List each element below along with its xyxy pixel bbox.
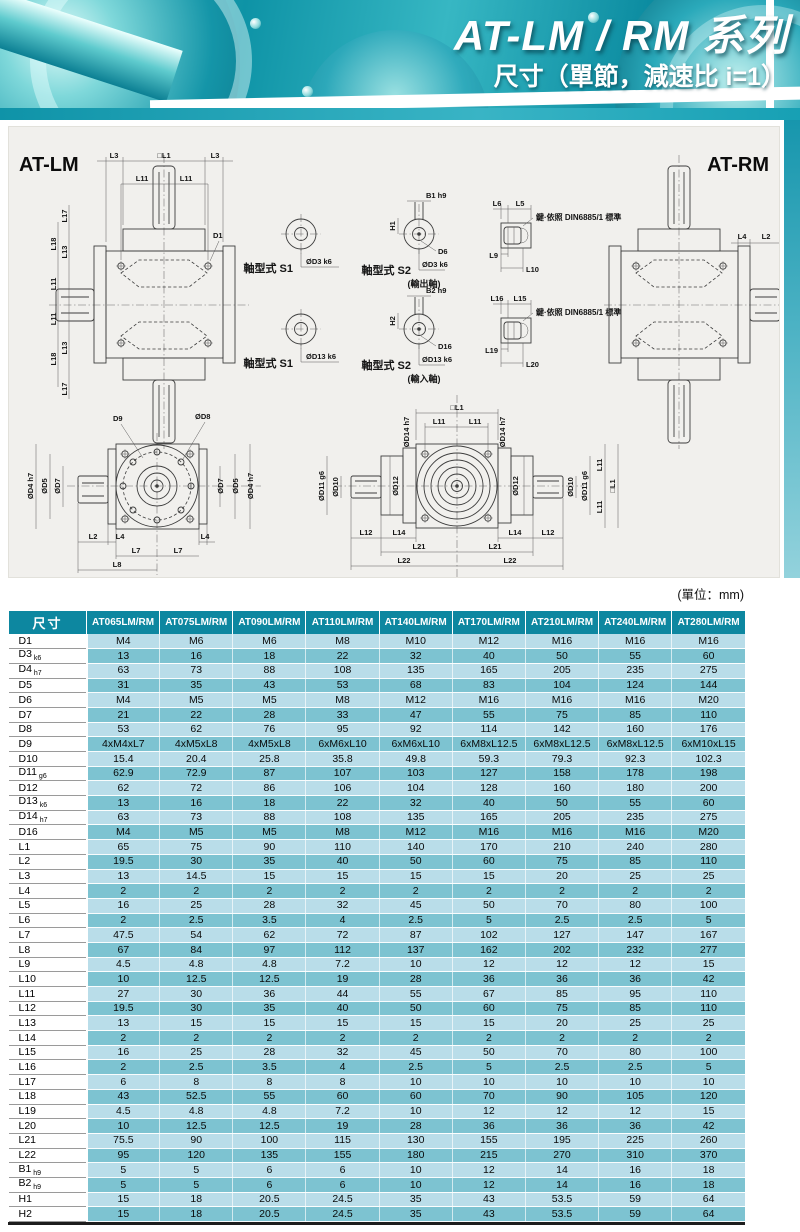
dim-label: L4 bbox=[738, 232, 748, 241]
value-cell: 16 bbox=[160, 649, 233, 664]
value-cell: 4xM4xL7 bbox=[87, 737, 160, 752]
value-cell: 36 bbox=[233, 987, 306, 1002]
row-label: D9 bbox=[9, 737, 87, 752]
value-cell: 62 bbox=[233, 928, 306, 943]
value-cell: 4xM5xL8 bbox=[160, 737, 233, 752]
value-cell: M12 bbox=[379, 693, 452, 708]
row-label: D16 bbox=[9, 825, 87, 840]
value-cell: 12.5 bbox=[160, 1119, 233, 1134]
value-cell: 14.5 bbox=[160, 869, 233, 884]
value-cell: 6 bbox=[87, 1075, 160, 1090]
value-cell: 127 bbox=[452, 766, 525, 781]
value-cell: M16 bbox=[525, 693, 598, 708]
dim-label: L17 bbox=[60, 210, 69, 223]
dim-label: H2 bbox=[388, 316, 397, 326]
value-cell: 16 bbox=[599, 1163, 672, 1178]
value-cell: 90 bbox=[525, 1089, 598, 1104]
right-edge-stripe bbox=[784, 120, 800, 578]
shaft-type-s1-label: 軸型式 S1 bbox=[243, 356, 293, 370]
value-cell: 10 bbox=[452, 1075, 525, 1090]
table-row: L31314.515151515202525 bbox=[9, 869, 746, 884]
value-cell: 15 bbox=[452, 869, 525, 884]
value-cell: 2 bbox=[160, 1031, 233, 1046]
value-cell: 92.3 bbox=[599, 752, 672, 767]
value-cell: 2 bbox=[599, 884, 672, 899]
value-cell: 225 bbox=[599, 1133, 672, 1148]
value-cell: 12.5 bbox=[233, 1119, 306, 1134]
value-cell: 158 bbox=[525, 766, 598, 781]
value-cell: 135 bbox=[379, 810, 452, 825]
dim-label: L11 bbox=[180, 174, 193, 183]
value-cell: 53.5 bbox=[525, 1207, 598, 1222]
value-cell: 18 bbox=[672, 1177, 745, 1192]
housing-side-view: □L1 L11 L11 ØD14 h7 ØD14 h7 ØD11 g6 ØD10… bbox=[317, 395, 618, 577]
value-cell: 100 bbox=[672, 898, 745, 913]
dim-label: D16 bbox=[438, 342, 452, 351]
value-cell: 102 bbox=[452, 928, 525, 943]
table-row: D3 k6131618223240505560 bbox=[9, 649, 746, 664]
row-label-tolerance: h9 bbox=[31, 1184, 41, 1191]
value-cell: 100 bbox=[233, 1133, 306, 1148]
value-cell: M8 bbox=[306, 634, 379, 649]
value-cell: 72 bbox=[160, 781, 233, 796]
dim-label: L14 bbox=[393, 528, 407, 537]
value-cell: 43 bbox=[87, 1089, 160, 1104]
value-cell: 18 bbox=[160, 1192, 233, 1207]
value-cell: 64 bbox=[672, 1207, 745, 1222]
table-body: D1M4M6M6M8M10M12M16M16M16D3 k61316182232… bbox=[9, 634, 746, 1222]
page-subtitle: 尺寸（單節，減速比 i=1） bbox=[494, 57, 786, 93]
value-cell: 52.5 bbox=[160, 1089, 233, 1104]
value-cell: 4.5 bbox=[87, 957, 160, 972]
value-cell: 49.8 bbox=[379, 752, 452, 767]
value-cell: 6 bbox=[233, 1163, 306, 1178]
value-cell: 10 bbox=[379, 1075, 452, 1090]
value-cell: 12 bbox=[599, 957, 672, 972]
value-cell: 12 bbox=[525, 1104, 598, 1119]
dim-label: L13 bbox=[60, 246, 69, 259]
value-cell: 87 bbox=[379, 928, 452, 943]
flange-side-view: D9 ØD8 ØD4 h7 ØD5 ØD7 ØD7 ØD5 ØD4 h7 L2 … bbox=[26, 412, 261, 575]
value-cell: 35 bbox=[233, 854, 306, 869]
dim-label: L11 bbox=[595, 459, 604, 472]
value-cell: 90 bbox=[233, 840, 306, 855]
value-cell: 167 bbox=[672, 928, 745, 943]
table-row: D14 h7637388108135165205235275 bbox=[9, 810, 746, 825]
value-cell: 7.2 bbox=[306, 1104, 379, 1119]
value-cell: 90 bbox=[160, 1133, 233, 1148]
value-cell: 6xM10xL15 bbox=[672, 737, 745, 752]
value-cell: 7.2 bbox=[306, 957, 379, 972]
value-cell: 275 bbox=[672, 810, 745, 825]
dim-label: L17 bbox=[60, 383, 69, 396]
value-cell: 144 bbox=[672, 678, 745, 693]
dim-label: D9 bbox=[113, 414, 123, 423]
value-cell: 2.5 bbox=[379, 1060, 452, 1075]
value-cell: 2.5 bbox=[160, 1060, 233, 1075]
column-header: AT140LM/RM bbox=[379, 611, 452, 634]
table-row: L8678497112137162202232277 bbox=[9, 942, 746, 957]
value-cell: 80 bbox=[599, 1045, 672, 1060]
value-cell: M16 bbox=[599, 634, 672, 649]
value-cell: 2 bbox=[525, 1031, 598, 1046]
value-cell: 12 bbox=[452, 1177, 525, 1192]
value-cell: 28 bbox=[379, 972, 452, 987]
dim-label: ØD10 bbox=[331, 477, 340, 497]
value-cell: 19.5 bbox=[87, 1001, 160, 1016]
value-cell: M6 bbox=[160, 634, 233, 649]
row-label: L6 bbox=[9, 913, 87, 928]
value-cell: 155 bbox=[452, 1133, 525, 1148]
value-cell: 2 bbox=[233, 884, 306, 899]
value-cell: 35 bbox=[379, 1207, 452, 1222]
value-cell: 180 bbox=[379, 1148, 452, 1163]
value-cell: 10 bbox=[379, 1104, 452, 1119]
value-cell: 5 bbox=[160, 1163, 233, 1178]
value-cell: 86 bbox=[233, 781, 306, 796]
value-cell: 15 bbox=[87, 1192, 160, 1207]
dim-label: L8 bbox=[113, 560, 122, 569]
value-cell: 2.5 bbox=[160, 913, 233, 928]
value-cell: 202 bbox=[525, 942, 598, 957]
value-cell: 10 bbox=[379, 1163, 452, 1178]
value-cell: 2 bbox=[672, 884, 745, 899]
dim-label: L18 bbox=[49, 353, 58, 366]
value-cell: 108 bbox=[306, 663, 379, 678]
dim-label: L15 bbox=[514, 294, 527, 303]
value-cell: 135 bbox=[379, 663, 452, 678]
shaft-type-s2-label: 軸型式 S2 bbox=[361, 358, 411, 372]
value-cell: 115 bbox=[306, 1133, 379, 1148]
value-cell: 30 bbox=[160, 987, 233, 1002]
dim-label: L7 bbox=[174, 546, 183, 555]
bolt-dot bbox=[302, 86, 313, 97]
value-cell: 15 bbox=[672, 957, 745, 972]
dim-label: L12 bbox=[360, 528, 373, 537]
value-cell: 10 bbox=[87, 1119, 160, 1134]
value-cell: 25.8 bbox=[233, 752, 306, 767]
dim-label: ØD7 bbox=[53, 478, 62, 493]
dim-label: L12 bbox=[542, 528, 555, 537]
value-cell: 30 bbox=[160, 854, 233, 869]
table-row: L13131515151515202525 bbox=[9, 1016, 746, 1031]
value-cell: 27 bbox=[87, 987, 160, 1002]
value-cell: 10 bbox=[379, 1177, 452, 1192]
value-cell: 235 bbox=[599, 663, 672, 678]
column-header: AT280LM/RM bbox=[672, 611, 745, 634]
value-cell: 16 bbox=[599, 1177, 672, 1192]
value-cell: 60 bbox=[672, 796, 745, 811]
row-label: L11 bbox=[9, 987, 87, 1002]
value-cell: 42 bbox=[672, 1119, 745, 1134]
key-detail-input: L16 L15 鍵·依照 DIN6885/1 標準 L19 L20 bbox=[485, 294, 621, 369]
row-label: L14 bbox=[9, 1031, 87, 1046]
row-label-tolerance: k6 bbox=[38, 802, 47, 809]
dim-label: ØD12 bbox=[511, 476, 520, 496]
value-cell: 5 bbox=[87, 1177, 160, 1192]
value-cell: 72.9 bbox=[160, 766, 233, 781]
value-cell: 110 bbox=[672, 854, 745, 869]
value-cell: 200 bbox=[672, 781, 745, 796]
row-label-tolerance: h7 bbox=[32, 670, 42, 677]
value-cell: 4.8 bbox=[160, 1104, 233, 1119]
value-cell: 33 bbox=[306, 707, 379, 722]
value-cell: 60 bbox=[306, 1089, 379, 1104]
table-row: L2175.590100115130155195225260 bbox=[9, 1133, 746, 1148]
dim-label: ØD13 k6 bbox=[306, 352, 336, 361]
value-cell: 12 bbox=[525, 957, 598, 972]
dim-label: B2 h9 bbox=[426, 286, 446, 295]
value-cell: 47.5 bbox=[87, 928, 160, 943]
value-cell: M6 bbox=[233, 634, 306, 649]
row-label: L19 bbox=[9, 1104, 87, 1119]
value-cell: 232 bbox=[599, 942, 672, 957]
value-cell: 5 bbox=[87, 1163, 160, 1178]
dim-label: ØD3 k6 bbox=[422, 260, 448, 269]
value-cell: 19 bbox=[306, 972, 379, 987]
value-cell: 260 bbox=[672, 1133, 745, 1148]
row-label: L2 bbox=[9, 854, 87, 869]
value-cell: 36 bbox=[525, 1119, 598, 1134]
value-cell: 40 bbox=[452, 796, 525, 811]
row-label: D3 k6 bbox=[9, 649, 87, 664]
value-cell: 50 bbox=[379, 854, 452, 869]
dim-label: L6 bbox=[493, 199, 502, 208]
table-row: D16M4M5M5M8M12M16M16M16M20 bbox=[9, 825, 746, 840]
table-row: L2295120135155180215270310370 bbox=[9, 1148, 746, 1163]
dim-label: L11 bbox=[49, 278, 58, 291]
row-label: L22 bbox=[9, 1148, 87, 1163]
dim-label: L4 bbox=[116, 532, 126, 541]
table-row: D72122283347557585110 bbox=[9, 707, 746, 722]
row-label-tolerance: h7 bbox=[38, 817, 48, 824]
value-cell: 12 bbox=[452, 1104, 525, 1119]
table-row: B1 h955661012141618 bbox=[9, 1163, 746, 1178]
value-cell: 85 bbox=[599, 1001, 672, 1016]
value-cell: 62 bbox=[87, 781, 160, 796]
value-cell: 28 bbox=[233, 1045, 306, 1060]
dim-label: ØD11 g6 bbox=[580, 471, 589, 501]
value-cell: 370 bbox=[672, 1148, 745, 1163]
value-cell: 20.4 bbox=[160, 752, 233, 767]
value-cell: 28 bbox=[379, 1119, 452, 1134]
value-cell: M20 bbox=[672, 693, 745, 708]
dim-label: L11 bbox=[469, 417, 482, 426]
value-cell: 60 bbox=[452, 1001, 525, 1016]
row-label: L18 bbox=[9, 1089, 87, 1104]
value-cell: 12.5 bbox=[160, 972, 233, 987]
table-row: D94xM4xL74xM5xL84xM5xL86xM6xL106xM6xL106… bbox=[9, 737, 746, 752]
dim-label: L3 bbox=[110, 151, 119, 160]
value-cell: M5 bbox=[160, 825, 233, 840]
shaft-type-s1-input: 軸型式 S1 ØD13 k6 bbox=[243, 309, 339, 370]
value-cell: 85 bbox=[599, 707, 672, 722]
value-cell: 6xM8xL12.5 bbox=[525, 737, 598, 752]
value-cell: 75 bbox=[525, 1001, 598, 1016]
value-cell: 4.8 bbox=[160, 957, 233, 972]
value-cell: 13 bbox=[87, 649, 160, 664]
value-cell: 137 bbox=[379, 942, 452, 957]
value-cell: 25 bbox=[599, 1016, 672, 1031]
value-cell: 24.5 bbox=[306, 1192, 379, 1207]
value-cell: 59 bbox=[599, 1207, 672, 1222]
value-cell: 62 bbox=[160, 722, 233, 737]
column-header: AT240LM/RM bbox=[599, 611, 672, 634]
value-cell: 10 bbox=[525, 1075, 598, 1090]
value-cell: 310 bbox=[599, 1148, 672, 1163]
table-row: D4 h7637388108135165205235275 bbox=[9, 663, 746, 678]
row-label: L1 bbox=[9, 840, 87, 855]
row-label: B2 h9 bbox=[9, 1177, 87, 1192]
value-cell: 36 bbox=[599, 1119, 672, 1134]
value-cell: 32 bbox=[379, 649, 452, 664]
value-cell: 110 bbox=[306, 840, 379, 855]
value-cell: 72 bbox=[306, 928, 379, 943]
value-cell: 12 bbox=[452, 1163, 525, 1178]
value-cell: 30 bbox=[160, 1001, 233, 1016]
value-cell: 15 bbox=[306, 869, 379, 884]
dimension-table: 尺寸AT065LM/RMAT075LM/RMAT090LM/RMAT110LM/… bbox=[8, 611, 745, 1222]
value-cell: M16 bbox=[452, 825, 525, 840]
value-cell: 4.8 bbox=[233, 1104, 306, 1119]
value-cell: 12 bbox=[452, 957, 525, 972]
value-cell: M16 bbox=[525, 825, 598, 840]
value-cell: M4 bbox=[87, 693, 160, 708]
value-cell: 75 bbox=[525, 707, 598, 722]
value-cell: 18 bbox=[233, 649, 306, 664]
value-cell: 195 bbox=[525, 1133, 598, 1148]
value-cell: 20.5 bbox=[233, 1207, 306, 1222]
row-label-tolerance: h9 bbox=[31, 1170, 41, 1177]
table-row: L4222222222 bbox=[9, 884, 746, 899]
value-cell: 2.5 bbox=[379, 913, 452, 928]
value-cell: 67 bbox=[452, 987, 525, 1002]
row-label: L5 bbox=[9, 898, 87, 913]
value-cell: 18 bbox=[160, 1207, 233, 1222]
technical-drawing: AT-LM AT-RM L3 □L1 L3 bbox=[9, 127, 779, 577]
dim-label: L22 bbox=[398, 556, 411, 565]
value-cell: 15 bbox=[160, 1016, 233, 1031]
value-cell: 2 bbox=[452, 884, 525, 899]
value-cell: 2.5 bbox=[525, 913, 598, 928]
value-cell: 2 bbox=[452, 1031, 525, 1046]
value-cell: 5 bbox=[452, 913, 525, 928]
value-cell: 2 bbox=[87, 1060, 160, 1075]
value-cell: 70 bbox=[525, 1045, 598, 1060]
value-cell: 35.8 bbox=[306, 752, 379, 767]
dim-label: L11 bbox=[49, 313, 58, 326]
value-cell: 8 bbox=[160, 1075, 233, 1090]
value-cell: 50 bbox=[525, 796, 598, 811]
page-title: AT-LM / RM 系列 bbox=[454, 2, 788, 63]
dim-label: L2 bbox=[762, 232, 771, 241]
table-row: D11 g662.972.987107103127158178198 bbox=[9, 766, 746, 781]
value-cell: 24.5 bbox=[306, 1207, 379, 1222]
value-cell: 6xM6xL10 bbox=[306, 737, 379, 752]
value-cell: 2 bbox=[87, 884, 160, 899]
input-shaft-label: (輸入軸) bbox=[408, 373, 441, 384]
value-cell: 95 bbox=[306, 722, 379, 737]
value-cell: 15 bbox=[672, 1104, 745, 1119]
row-label: D10 bbox=[9, 752, 87, 767]
value-cell: 2 bbox=[379, 884, 452, 899]
dim-label: ØD4 h7 bbox=[246, 473, 255, 499]
shaft-type-s1-label: 軸型式 S1 bbox=[243, 261, 293, 275]
value-cell: 12 bbox=[599, 1104, 672, 1119]
value-cell: 87 bbox=[233, 766, 306, 781]
value-cell: 235 bbox=[599, 810, 672, 825]
value-cell: 275 bbox=[672, 663, 745, 678]
table-row: L194.54.84.87.21012121215 bbox=[9, 1104, 746, 1119]
value-cell: 55 bbox=[452, 707, 525, 722]
value-cell: 280 bbox=[672, 840, 745, 855]
value-cell: 165 bbox=[452, 663, 525, 678]
value-cell: M16 bbox=[452, 693, 525, 708]
dim-label: L18 bbox=[49, 238, 58, 251]
row-label: L17 bbox=[9, 1075, 87, 1090]
row-label: D8 bbox=[9, 722, 87, 737]
value-cell: 112 bbox=[306, 942, 379, 957]
value-cell: M4 bbox=[87, 825, 160, 840]
dim-label: □L1 bbox=[157, 151, 170, 160]
value-cell: 10 bbox=[599, 1075, 672, 1090]
value-cell: 2 bbox=[233, 1031, 306, 1046]
value-cell: 84 bbox=[160, 942, 233, 957]
value-cell: 53.5 bbox=[525, 1192, 598, 1207]
value-cell: 25 bbox=[599, 869, 672, 884]
value-cell: 2 bbox=[599, 1031, 672, 1046]
dim-label: ØD14 h7 bbox=[402, 417, 411, 447]
value-cell: 5 bbox=[672, 1060, 745, 1075]
value-cell: 19.5 bbox=[87, 854, 160, 869]
value-cell: 50 bbox=[452, 898, 525, 913]
dim-label: L7 bbox=[132, 546, 141, 555]
value-cell: 16 bbox=[87, 1045, 160, 1060]
value-cell: 42 bbox=[672, 972, 745, 987]
row-label: D5 bbox=[9, 678, 87, 693]
value-cell: 67 bbox=[87, 942, 160, 957]
value-cell: 75 bbox=[525, 854, 598, 869]
value-cell: 75 bbox=[160, 840, 233, 855]
value-cell: M20 bbox=[672, 825, 745, 840]
value-cell: 21 bbox=[87, 707, 160, 722]
value-cell: 47 bbox=[379, 707, 452, 722]
value-cell: 18 bbox=[672, 1163, 745, 1178]
value-cell: 54 bbox=[160, 928, 233, 943]
value-cell: M10 bbox=[379, 634, 452, 649]
value-cell: 32 bbox=[306, 898, 379, 913]
value-cell: 110 bbox=[672, 987, 745, 1002]
value-cell: 128 bbox=[452, 781, 525, 796]
value-cell: 35 bbox=[160, 678, 233, 693]
row-label: D13 k6 bbox=[9, 796, 87, 811]
value-cell: 205 bbox=[525, 810, 598, 825]
table-row: D1M4M6M6M8M10M12M16M16M16 bbox=[9, 634, 746, 649]
value-cell: 5 bbox=[452, 1060, 525, 1075]
value-cell: 165 bbox=[452, 810, 525, 825]
value-cell: 2 bbox=[525, 884, 598, 899]
value-cell: 147 bbox=[599, 928, 672, 943]
value-cell: 160 bbox=[525, 781, 598, 796]
value-cell: 120 bbox=[160, 1148, 233, 1163]
row-label: L9 bbox=[9, 957, 87, 972]
dim-label: L10 bbox=[526, 265, 539, 274]
value-cell: 180 bbox=[599, 781, 672, 796]
value-cell: 15 bbox=[306, 1016, 379, 1031]
value-cell: M12 bbox=[379, 825, 452, 840]
table-row: L219.530354050607585110 bbox=[9, 854, 746, 869]
value-cell: 13 bbox=[87, 796, 160, 811]
